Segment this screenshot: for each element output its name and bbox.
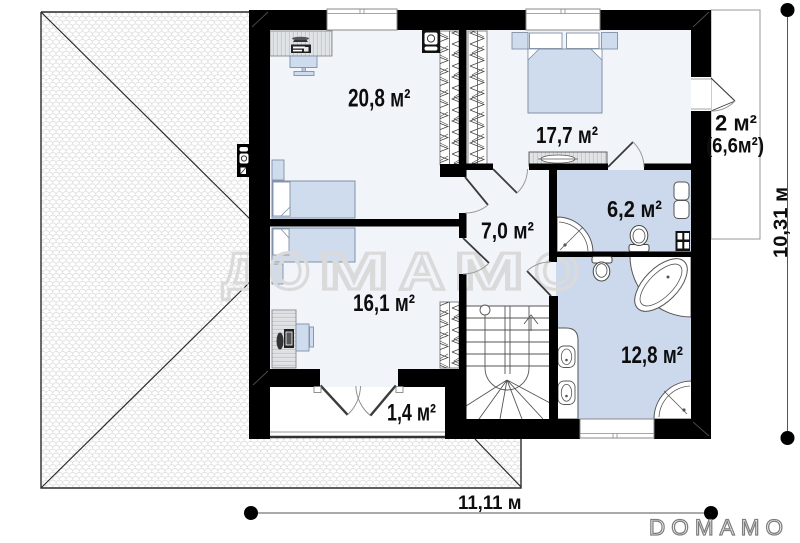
svg-text:16,1 м²: 16,1 м² (353, 290, 415, 317)
svg-text:1,4 м²: 1,4 м² (387, 400, 436, 427)
svg-text:7,0 м²: 7,0 м² (481, 218, 534, 244)
svg-text:О: О (269, 243, 310, 301)
svg-text:(6,6м²): (6,6м²) (706, 134, 764, 158)
svg-text:11,11 м: 11,11 м (458, 492, 522, 514)
svg-text:2 м²: 2 м² (715, 111, 757, 136)
svg-text:12,8 м²: 12,8 м² (621, 342, 683, 369)
svg-text:17,7 м²: 17,7 м² (536, 122, 598, 148)
svg-text:10,31 м: 10,31 м (771, 187, 792, 258)
svg-text:6,2 м²: 6,2 м² (607, 196, 662, 222)
svg-text:20,8 м²: 20,8 м² (348, 85, 411, 113)
